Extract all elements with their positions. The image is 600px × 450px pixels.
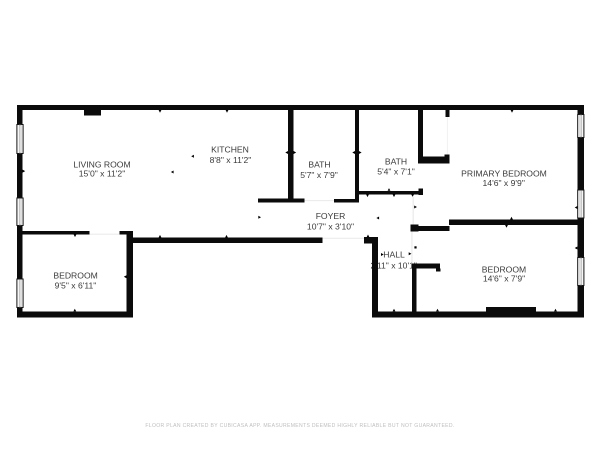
- svg-text:BEDROOM: BEDROOM: [53, 271, 97, 281]
- svg-text:15'0" x 11'2": 15'0" x 11'2": [79, 169, 126, 179]
- svg-text:HALL: HALL: [383, 250, 405, 260]
- svg-text:FOYER: FOYER: [316, 211, 346, 221]
- svg-text:5'7" x 7'9": 5'7" x 7'9": [300, 170, 338, 180]
- svg-text:14'6" x 7'9": 14'6" x 7'9": [483, 273, 525, 283]
- svg-text:14'6" x 9'9": 14'6" x 9'9": [483, 178, 525, 188]
- svg-text:8'8" x 11'2": 8'8" x 11'2": [210, 155, 252, 165]
- svg-text:KITCHEN: KITCHEN: [211, 144, 249, 154]
- svg-text:PRIMARY BEDROOM: PRIMARY BEDROOM: [461, 168, 547, 178]
- svg-text:BATH: BATH: [385, 157, 407, 167]
- svg-text:10'7" x 3'10": 10'7" x 3'10": [307, 221, 354, 231]
- svg-text:5'4" x 7'1": 5'4" x 7'1": [377, 166, 415, 176]
- svg-text:FLOOR PLAN CREATED BY CUBICASA: FLOOR PLAN CREATED BY CUBICASA APP. MEAS…: [145, 423, 454, 429]
- svg-text:BATH: BATH: [308, 160, 330, 170]
- svg-text:9'5" x 6'11": 9'5" x 6'11": [55, 280, 97, 290]
